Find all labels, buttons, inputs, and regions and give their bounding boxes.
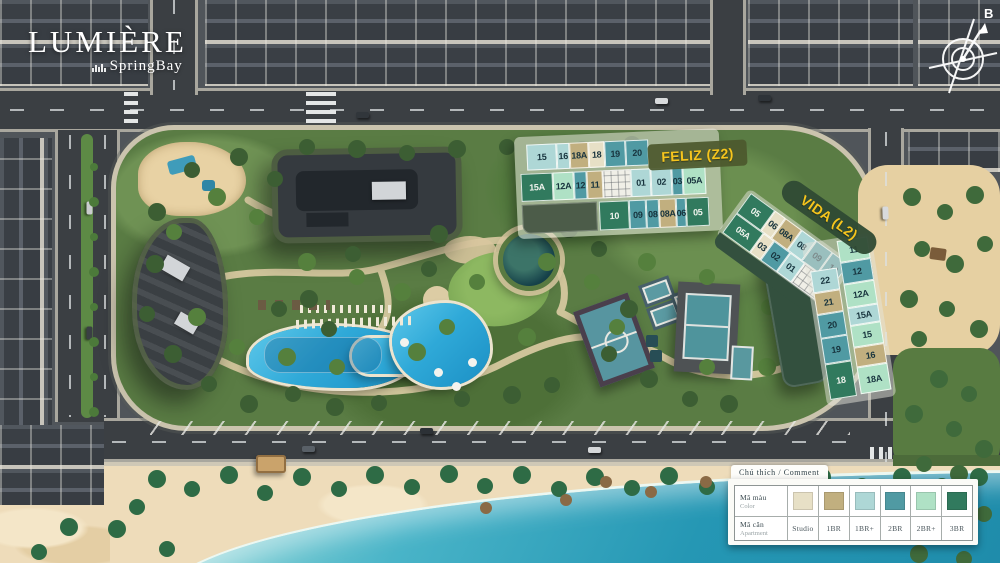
legend-swatch-cell [880, 486, 911, 516]
unit-11[interactable]: 11 [586, 170, 603, 199]
beach-hut [256, 455, 286, 473]
unit-15[interactable]: 15 [526, 143, 557, 170]
unit-number: 01 [636, 178, 646, 188]
parking-stripes [150, 421, 850, 435]
masterplan-canvas: 151618A181920 15A12A121101020305A 100908… [0, 0, 1000, 563]
unit-10[interactable]: 10 [599, 200, 630, 230]
road-median [81, 134, 93, 418]
unit-number: 19 [831, 344, 842, 355]
existing-building-north [271, 146, 463, 243]
unit-number: 11 [590, 180, 599, 190]
apartment-type-label: 2BR+ [917, 524, 936, 533]
unit-number: 16 [865, 350, 876, 361]
unit-number: 09 [633, 209, 643, 219]
unit-12[interactable]: 12 [573, 171, 587, 200]
color-swatch-1BR+ [855, 492, 875, 510]
unit-18[interactable]: 18 [825, 360, 857, 400]
unit-05[interactable]: 05 [686, 197, 710, 227]
unit-number: 10 [609, 210, 619, 220]
color-swatch-2BR+ [916, 492, 936, 510]
legend-type-cell: 3BR [941, 516, 972, 540]
unit-number: 21 [823, 296, 834, 307]
unit-number: 12 [852, 266, 863, 277]
unit-number: 08A [660, 208, 676, 219]
townhouse-block [205, 0, 710, 86]
unit-number: 02 [769, 250, 783, 264]
unit-number: 08 [648, 209, 658, 219]
skyline-icon [92, 64, 106, 72]
car [356, 112, 369, 118]
unit-number: 19 [610, 149, 620, 159]
unit-number: 15A [855, 309, 872, 321]
park-pavilion [929, 247, 947, 261]
unit-number: 01 [784, 261, 798, 275]
color-swatch-2BR [885, 492, 905, 510]
car [87, 327, 93, 340]
legend-swatch-cell [818, 486, 849, 516]
unit-number: 18 [835, 375, 846, 386]
feliz-row-1: 151618A181920 [526, 139, 649, 170]
color-swatch-Studio [793, 492, 813, 510]
compass: B [928, 6, 998, 99]
car [758, 95, 771, 101]
unit-number: 05 [693, 207, 703, 217]
unit-number: 20 [632, 148, 642, 158]
car [655, 98, 668, 104]
unit-number: 15A [529, 182, 545, 193]
apartment-type-label: 2BR [888, 524, 903, 533]
playground-equipment [202, 180, 215, 191]
unit-19[interactable]: 19 [604, 140, 626, 167]
unit-number: 03 [672, 176, 682, 186]
unit-18[interactable]: 18 [588, 141, 605, 168]
unit-18A[interactable]: 18A [569, 142, 589, 169]
legend-type-cell: 1BR+ [849, 516, 880, 540]
pavilion-tent [646, 335, 658, 347]
legend-card: Mã màu Color Mã căn Apartment Studio1BR1… [728, 479, 978, 545]
pool-cabanas [258, 300, 330, 310]
crosswalk [124, 92, 138, 128]
apartment-type-label: 1BR [826, 524, 841, 533]
legend-type-cell: 2BR+ [910, 516, 941, 540]
legend-type-cell: 1BR [818, 516, 849, 540]
unit-09[interactable]: 09 [629, 200, 647, 230]
core-cell [602, 169, 631, 198]
color-swatch-3BR [947, 492, 967, 510]
unit-15A[interactable]: 15A [520, 173, 553, 202]
feliz-zone-label-text: FELIZ (Z2) [661, 145, 734, 165]
unit-02[interactable]: 02 [650, 167, 672, 196]
unit-number: 18A [866, 372, 883, 384]
unit-number: 12A [852, 288, 869, 300]
unit-number: 20 [827, 319, 838, 330]
unit-20[interactable]: 20 [625, 139, 649, 166]
car [882, 206, 888, 219]
car [420, 428, 433, 434]
logo-title: LUMIÈRE [28, 24, 187, 60]
mini-court [730, 345, 754, 380]
unit-08[interactable]: 08 [646, 199, 660, 229]
car [302, 446, 315, 452]
unit-number: 05A [734, 224, 753, 241]
lap-pool [264, 337, 382, 373]
unit-number: 15 [537, 152, 547, 162]
unit-number: 18 [592, 149, 602, 159]
legend-swatch-cell [849, 486, 880, 516]
feliz-row-3: 10090808A0605 [599, 197, 710, 231]
apartment-type-label: 1BR+ [855, 524, 874, 533]
legend-swatch-cell [910, 486, 941, 516]
feliz-roof [522, 202, 598, 234]
beach-sand [0, 505, 110, 563]
townhouse-block [0, 425, 112, 507]
unit-number: 06 [676, 207, 686, 217]
legend-type-cell: Studio [787, 516, 818, 540]
unit-18A[interactable]: 18A [857, 363, 892, 395]
east-green-park [893, 348, 1000, 468]
road-top-center [710, 0, 746, 95]
unit-number: 12A [555, 181, 571, 192]
unit-number: 22 [820, 275, 831, 286]
unit-12A[interactable]: 12A [552, 172, 574, 201]
apartment-type-label: 3BR [950, 524, 965, 533]
logo-subtitle: SpringBay [110, 58, 183, 75]
playground-area [138, 142, 246, 216]
unit-number: 18A [571, 150, 587, 161]
unit-number: 05 [749, 205, 763, 219]
pavilion-tent [650, 350, 662, 362]
compass-north-label: B [984, 6, 993, 21]
beach-umbrellas [0, 0, 12, 12]
feliz-zone-label[interactable]: FELIZ (Z2) [647, 139, 747, 170]
legend-type-cell: 2BR [880, 516, 911, 540]
color-swatch-1BR [824, 492, 844, 510]
car [588, 447, 601, 453]
project-logo: LUMIÈRE SpringBay [28, 24, 187, 75]
unit-number: 12 [576, 180, 586, 190]
crosswalk [306, 92, 336, 128]
unit-number: 15 [862, 329, 873, 340]
townhouse-block [748, 0, 913, 86]
legend-title: Chú thích / Comment [731, 465, 828, 479]
unit-01[interactable]: 01 [630, 168, 651, 197]
unit-number: 02 [656, 177, 666, 187]
unit-08A[interactable]: 08A [659, 198, 677, 228]
unit-16[interactable]: 16 [556, 143, 570, 170]
legend-row-color-label: Mã màu Color [735, 486, 787, 516]
unit-05A[interactable]: 05A [682, 166, 706, 195]
existing-building-west [132, 218, 228, 390]
legend-swatch-cell [787, 486, 818, 516]
unit-number: 05A [686, 175, 702, 186]
townhouse-block [0, 138, 52, 430]
apartment-type-label: Studio [792, 524, 813, 533]
legend-row-apartment-label: Mã căn Apartment [735, 516, 787, 540]
unit-number: 16 [558, 151, 568, 161]
legend-swatch-cell [941, 486, 972, 516]
car [87, 202, 93, 215]
legend-table: Mã màu Color Mã căn Apartment Studio1BR1… [734, 485, 973, 541]
